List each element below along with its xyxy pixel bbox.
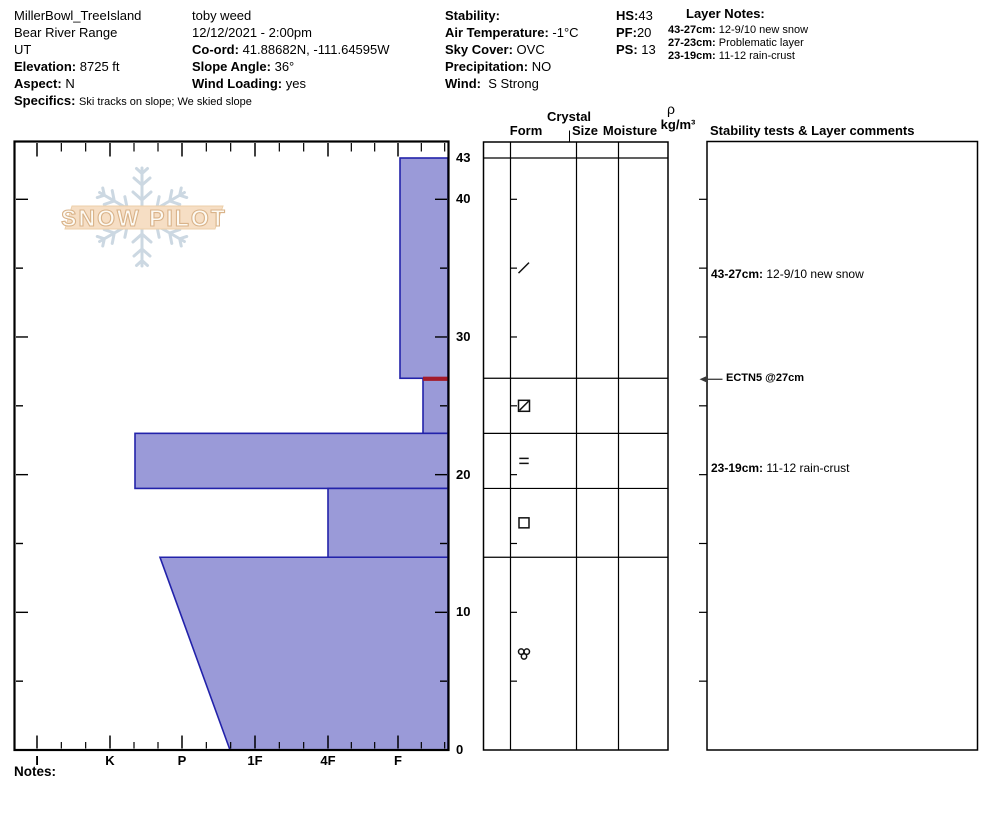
layer-comment: 43-27cm: 12-9/10 new snow bbox=[711, 267, 864, 281]
crystal-header: Crystal bbox=[547, 109, 591, 124]
layer-note-text: 11-12 rain-crust bbox=[719, 50, 795, 62]
wind-loading-value: yes bbox=[286, 76, 306, 91]
density-units-header: kg/m³ bbox=[661, 117, 696, 132]
wind-label: Wind: bbox=[445, 76, 481, 91]
slope-angle-value: 36° bbox=[275, 59, 295, 74]
layer-comment-range: 23-19cm: bbox=[711, 461, 763, 475]
layer-comment-text: 11-12 rain-crust bbox=[763, 461, 849, 475]
wind-row: Wind: S Strong bbox=[445, 75, 579, 92]
air-temp-label: Air Temperature: bbox=[445, 25, 549, 40]
hardness-tick-label: K bbox=[105, 753, 114, 768]
wind-loading-label: Wind Loading: bbox=[192, 76, 282, 91]
problem-layer-marker bbox=[423, 377, 448, 381]
aspect-value: N bbox=[65, 76, 74, 91]
hardness-tick-label: 1F bbox=[247, 753, 262, 768]
pf-label: PF: bbox=[616, 25, 637, 40]
layer-note-text: 12-9/10 new snow bbox=[719, 24, 808, 36]
crystal-windpacked-icon bbox=[520, 401, 529, 410]
depth-summary-block: HS:43 PF:20 PS: 13 bbox=[616, 7, 656, 58]
wind-loading-row: Wind Loading: yes bbox=[192, 75, 390, 92]
air-temp-row: Air Temperature: -1°C bbox=[445, 24, 579, 41]
air-temp-value: -1°C bbox=[552, 25, 578, 40]
logo-text: SNOW PILOT bbox=[61, 205, 227, 231]
aspect-label: Aspect: bbox=[14, 76, 62, 91]
layer-notes-list: 43-27cm: 12-9/10 new snow 27-23cm: Probl… bbox=[668, 24, 808, 63]
layer-note-label: 43-27cm: bbox=[668, 24, 716, 36]
layer-note-label: 23-19cm: bbox=[668, 50, 716, 62]
observer-block: toby weed 12/12/2021 - 2:00pm Co-ord: 41… bbox=[192, 7, 390, 92]
precip-row: Precipitation: NO bbox=[445, 58, 579, 75]
snow-layer-bar bbox=[328, 488, 448, 557]
sky-cover-value: OVC bbox=[517, 42, 545, 57]
snowpilot-profile-page: SNOW PILOT MillerBowl_TreeIsland Bear Ri… bbox=[0, 0, 994, 840]
precip-label: Precipitation: bbox=[445, 59, 528, 74]
layer-comment: 23-19cm: 11-12 rain-crust bbox=[711, 461, 850, 475]
depth-tick-label: 10 bbox=[456, 604, 470, 619]
hardness-tick-label: F bbox=[394, 753, 402, 768]
hs-value: 43 bbox=[638, 8, 652, 23]
ps-row: PS: 13 bbox=[616, 41, 656, 58]
layer-note: 27-23cm: Problematic layer bbox=[668, 37, 808, 50]
weather-block: Stability: Air Temperature: -1°C Sky Cov… bbox=[445, 7, 579, 92]
layer-comment-text: 12-9/10 new snow bbox=[763, 267, 864, 281]
hs-label: HS: bbox=[616, 8, 638, 23]
notes-label: Notes: bbox=[14, 764, 56, 779]
stability-label: Stability: bbox=[445, 7, 579, 24]
slope-angle-row: Slope Angle: 36° bbox=[192, 58, 390, 75]
slope-angle-label: Slope Angle: bbox=[192, 59, 271, 74]
comments-header: Stability tests & Layer comments bbox=[710, 123, 914, 138]
coord-label: Co-ord: bbox=[192, 42, 239, 57]
precip-value: NO bbox=[532, 59, 552, 74]
moisture-header: Moisture bbox=[603, 123, 657, 138]
sky-cover-row: Sky Cover: OVC bbox=[445, 41, 579, 58]
form-header: Form bbox=[510, 123, 543, 138]
crystal-table-border bbox=[484, 142, 669, 750]
coord-value: 41.88682N, -111.64595W bbox=[243, 42, 390, 57]
snow-layer-bar bbox=[135, 433, 448, 488]
hardness-tick-label: P bbox=[178, 753, 187, 768]
coord-row: Co-ord: 41.88682N, -111.64595W bbox=[192, 41, 390, 58]
ps-label: PS: bbox=[616, 42, 638, 57]
pf-value: 20 bbox=[637, 25, 651, 40]
layer-note: 23-19cm: 11-12 rain-crust bbox=[668, 50, 808, 63]
test-arrow-head bbox=[700, 375, 709, 383]
snow-layer-bar bbox=[160, 557, 448, 750]
crystal-melt-forms-icon bbox=[521, 654, 526, 659]
pit-datetime: 12/12/2021 - 2:00pm bbox=[192, 24, 390, 41]
layer-note-text: Problematic layer bbox=[719, 37, 804, 49]
layer-comment-range: 43-27cm: bbox=[711, 267, 763, 281]
depth-tick-label: 43 bbox=[456, 150, 470, 165]
layer-note: 43-27cm: 12-9/10 new snow bbox=[668, 24, 808, 37]
sky-cover-label: Sky Cover: bbox=[445, 42, 513, 57]
density-header: ρ bbox=[667, 101, 675, 117]
layer-note-label: 27-23cm: bbox=[668, 37, 716, 49]
depth-tick-label: 40 bbox=[456, 191, 470, 206]
crystal-facets-icon bbox=[519, 518, 529, 528]
specifics-value: Ski tracks on slope; We skied slope bbox=[79, 96, 252, 108]
specifics-label: Specifics: bbox=[14, 93, 75, 108]
comments-box-border bbox=[707, 142, 978, 751]
crystal-decomposing-icon bbox=[519, 263, 530, 274]
elevation-label: Elevation: bbox=[14, 59, 76, 74]
observer-name: toby weed bbox=[192, 7, 390, 24]
depth-tick-label: 0 bbox=[456, 742, 463, 757]
stability-test-result: ECTN5 @27cm bbox=[726, 372, 804, 384]
specifics-row: Specifics: Ski tracks on slope; We skied… bbox=[14, 92, 252, 109]
size-header: Size bbox=[572, 123, 598, 138]
snowpilot-logo: SNOW PILOT bbox=[61, 168, 227, 266]
wind-value: S Strong bbox=[488, 76, 539, 91]
depth-tick-label: 20 bbox=[456, 467, 470, 482]
hs-row: HS:43 bbox=[616, 7, 656, 24]
hardness-tick-label: 4F bbox=[320, 753, 335, 768]
depth-tick-label: 30 bbox=[456, 329, 470, 344]
elevation-value: 8725 ft bbox=[80, 59, 120, 74]
pf-row: PF:20 bbox=[616, 24, 656, 41]
ps-value: 13 bbox=[641, 42, 655, 57]
layer-notes-heading: Layer Notes: bbox=[686, 6, 765, 21]
